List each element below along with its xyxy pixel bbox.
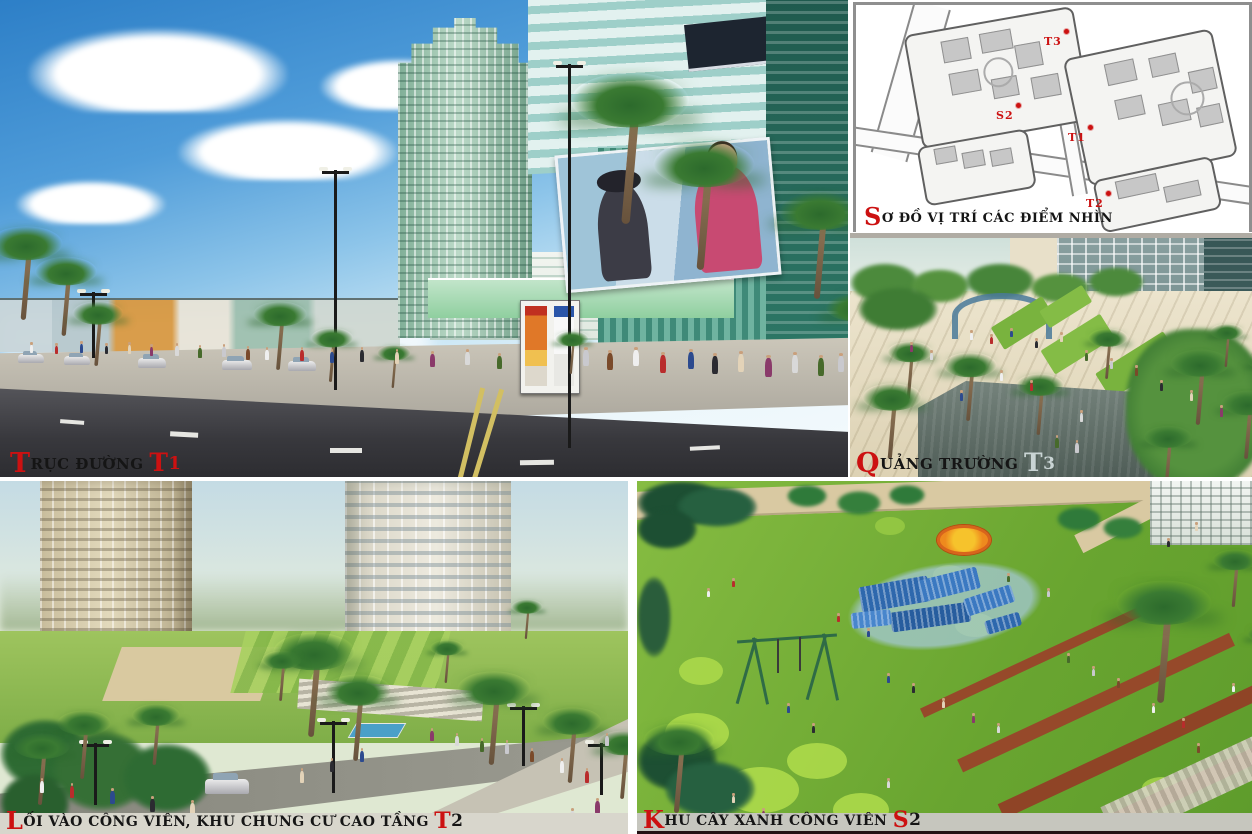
lamp [92,292,95,358]
bush [787,485,827,507]
person [1047,591,1050,597]
cloud [178,118,398,180]
person [867,631,870,637]
person [765,358,772,377]
person [505,743,509,754]
person [1075,443,1079,453]
person [887,676,890,683]
lamp [334,170,337,390]
decor [875,517,905,535]
person [1080,413,1083,422]
decor [330,448,362,453]
person [1220,408,1223,417]
panel-plaza-t3: QUẢNG TRƯỜNG T3 [850,233,1252,477]
person [330,352,334,363]
person [942,701,945,708]
car [288,361,316,371]
billboard-figure-left [594,180,653,282]
person [175,346,179,356]
caption-tag: T [149,448,168,477]
person [997,726,1000,733]
person [80,344,83,353]
person [430,731,434,741]
person [910,345,913,352]
decor [520,460,554,466]
person [1030,383,1033,391]
car [205,779,249,794]
person [990,337,993,344]
person [970,333,973,340]
bush [637,577,671,657]
caption-s2: KHU CÂY XANH CÔNG VIÊN S2 [643,808,921,832]
lamp [94,743,97,805]
caption-tag-number: 2 [451,811,463,831]
sun-ground-art [937,525,991,555]
person [1060,335,1063,342]
person [110,791,115,804]
advertising-billboard [554,137,781,293]
bush [122,743,212,813]
person [150,347,153,356]
palm [1209,548,1252,607]
residential-tower-left [40,481,192,651]
kiosk-poster-left [525,306,547,386]
person [30,345,33,353]
person [1035,341,1038,348]
person [1007,576,1010,582]
bush [637,509,697,549]
person [583,350,589,366]
person [960,393,963,401]
kiosk-poster-right [554,306,574,386]
bush [1057,507,1101,531]
person [560,761,564,773]
lamp [332,721,335,793]
person [605,736,609,746]
person [330,761,334,772]
person [1190,393,1193,401]
caption-t2: LỐI VÀO CÔNG VIÊN, KHU CHUNG CƯ CAO TẦNG… [6,809,464,833]
person [887,781,890,788]
person [585,771,589,783]
person [812,726,815,733]
person [70,786,74,798]
person [360,350,364,362]
bush [1088,267,1144,297]
caption-tag: T [1024,448,1043,477]
person [607,353,613,370]
bush [1103,517,1143,539]
person [198,348,202,358]
person [787,706,790,713]
person [1182,721,1185,728]
cloud [28,28,288,112]
cloud [16,180,166,224]
caption-tag-number: 1 [168,453,181,474]
person [40,781,44,793]
person [707,591,710,597]
person [265,350,269,360]
person [300,350,304,361]
car [18,354,44,363]
lamp [568,64,571,448]
person [972,716,975,723]
caption-tag: S [893,807,909,833]
panel-park-entrance-t2: LỐI VÀO CÔNG VIÊN, KHU CHUNG CƯ CAO TẦNG… [0,481,628,834]
person [818,358,824,376]
car [222,360,252,370]
person [105,346,108,354]
lamp [522,706,525,766]
person [530,751,534,762]
person [1110,361,1113,369]
person [246,349,250,360]
swing-set [737,629,837,709]
panel-street-axis-t1: TRỤC ĐƯỜNG T1 [0,0,848,477]
person [455,736,459,746]
caption-tag-number: 3 [1043,454,1055,474]
decor [679,657,723,685]
viewpoint-marker-s2: S2 [996,109,1014,122]
lowrise-buildings [0,298,400,352]
water-feature [348,723,407,738]
presentation-board: TRỤC ĐƯỜNG T1 T3 S2 T1 T2 SƠ ĐỒ VỊ TRÍ C… [0,0,1252,834]
car [64,356,90,365]
caption-lead-letter: L [6,806,23,834]
lamp [600,743,603,795]
caption-text: UẢNG TRƯỜNG [880,455,1024,473]
person [55,346,58,354]
person [1232,686,1235,692]
person [837,616,840,622]
person [1117,681,1120,688]
person [1085,353,1088,361]
caption-tag: T [434,808,451,834]
green-glass-tower [766,0,848,394]
person [792,355,798,373]
person [1000,373,1003,381]
person [738,354,744,372]
person [1067,656,1070,663]
caption-text: ỐI VÀO CÔNG VIÊN, KHU CHUNG CƯ CAO TẦNG [23,814,434,830]
person [660,355,666,373]
person [222,347,226,357]
person [912,686,915,693]
bush [889,485,925,505]
person [1055,438,1059,448]
person [838,356,844,372]
decor [787,743,847,779]
caption-text: HU CÂY XANH CÔNG VIÊN [664,813,892,829]
person [712,356,718,374]
person [633,350,639,366]
caption-lead-letter: T [10,448,31,477]
person [497,356,502,369]
caption-t3: QUẢNG TRƯỜNG T3 [856,450,1055,477]
person [1092,669,1095,676]
advertising-kiosk [520,300,580,394]
pbld [1014,41,1044,69]
person [300,771,304,783]
decor [957,633,1235,772]
person [480,741,484,752]
viewpoint-marker-t1: T1 [1068,131,1086,144]
palm [1245,623,1252,675]
person [128,345,131,354]
viewpoint-marker-t3: T3 [1044,35,1062,48]
caption-lead-letter: Q [856,448,880,477]
bush [858,287,938,331]
person [732,796,735,803]
billboard-figure-right [691,162,763,273]
person [688,352,694,369]
caption-text: RỤC ĐƯỜNG [31,455,150,473]
person [360,751,364,762]
building-corner [1150,481,1252,545]
panel-site-plan: T3 S2 T1 T2 SƠ ĐỒ VỊ TRÍ CÁC ĐIỂM NHÌN [853,2,1252,232]
bush [837,491,881,515]
person [1197,746,1200,753]
caption-lead-letter: K [643,805,664,834]
person [395,352,399,364]
caption-text: Ơ ĐỒ VỊ TRÍ CÁC ĐIỂM NHÌN [882,211,1113,226]
person [430,354,435,367]
person [732,581,735,587]
person [465,352,470,365]
person [1010,331,1013,337]
car [138,358,166,368]
person [1135,368,1138,376]
green-bank [1126,329,1252,477]
person [1152,706,1155,713]
person [1167,541,1170,547]
person [1160,383,1163,391]
panel-park-green-s2: KHU CÂY XANH CÔNG VIÊN S2 [637,481,1252,834]
person [1195,525,1198,531]
caption-site-plan: SƠ ĐỒ VỊ TRÍ CÁC ĐIỂM NHÌN [864,205,1113,229]
caption-lead-letter: S [864,202,882,231]
caption-t1: TRỤC ĐƯỜNG T1 [10,450,181,477]
caption-tag-number: 2 [909,810,921,830]
panel-edge [850,233,1252,238]
person [930,353,933,360]
